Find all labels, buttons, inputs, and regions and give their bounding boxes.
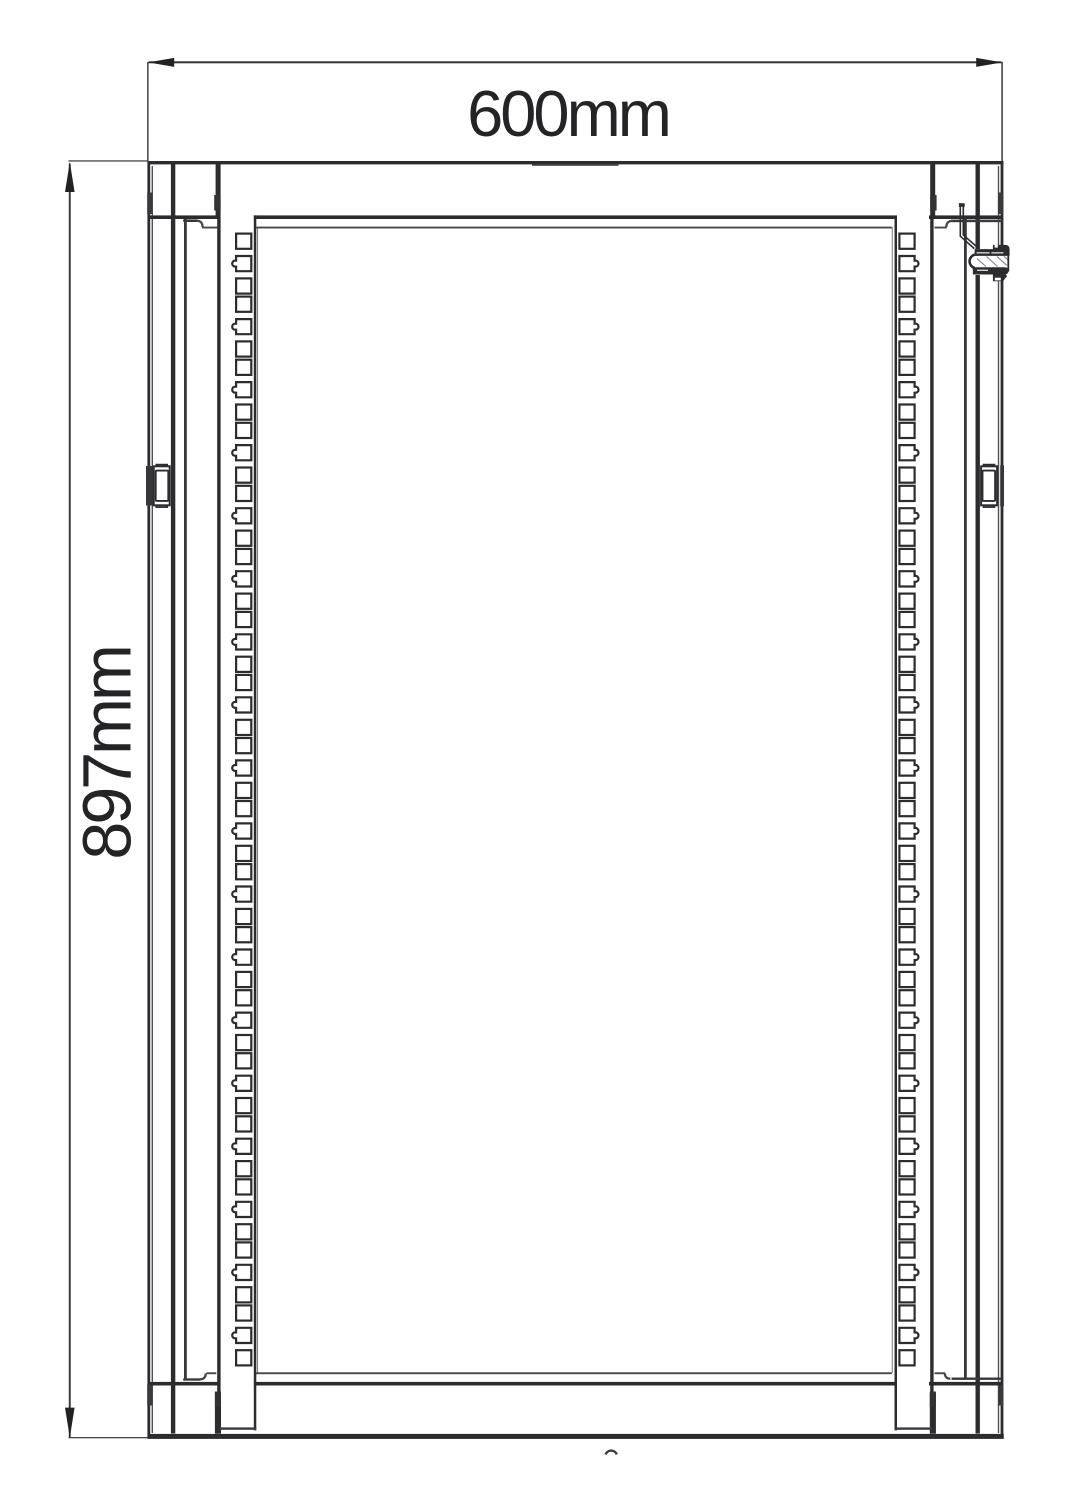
svg-text:600mm: 600mm: [467, 77, 669, 150]
svg-text:897mm: 897mm: [69, 647, 146, 859]
